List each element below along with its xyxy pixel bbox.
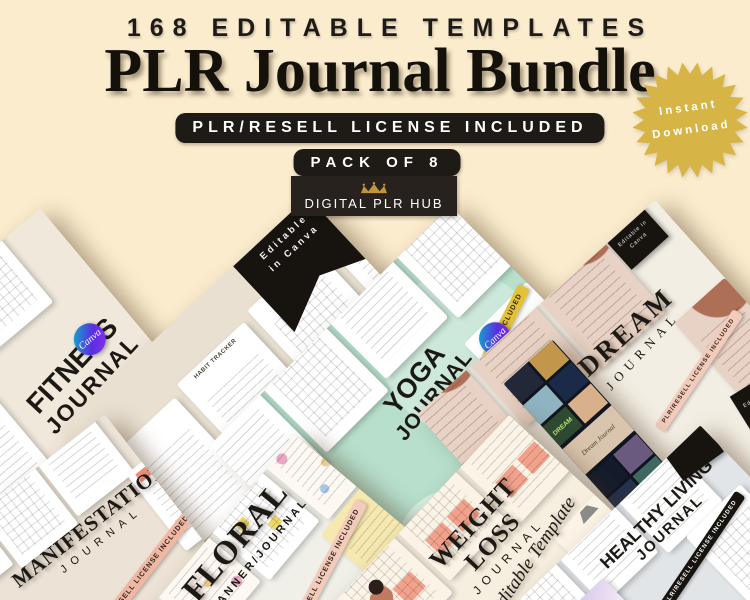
pack-badge: PACK OF 8 — [294, 149, 461, 176]
product-cover: FITNESS JOURNAL Canva PLR/RESELL LICENSE… — [0, 0, 750, 600]
habit-tracker-label: HABIT TRACKER — [177, 322, 252, 393]
page-title: PLR Journal Bundle — [104, 40, 655, 102]
instant-download-badge: Instant Download — [631, 61, 749, 179]
instant-download-text: Instant Download — [623, 53, 750, 186]
brand-name: DIGITAL PLR HUB — [304, 196, 443, 211]
brand-logo: DIGITAL PLR HUB — [291, 176, 457, 216]
crown-icon — [359, 182, 389, 195]
license-badge: PLR/RESELL LICENSE INCLUDED — [175, 113, 604, 143]
template-page-thumbnail — [0, 212, 53, 358]
